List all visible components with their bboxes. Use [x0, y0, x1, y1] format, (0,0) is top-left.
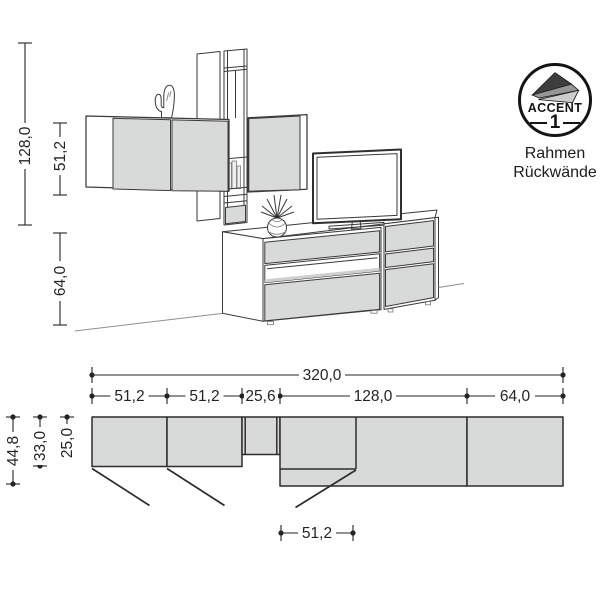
- dim-plan-depth-2: 33,0: [32, 427, 49, 465]
- plan-sideboard-right: [467, 417, 563, 486]
- cabinet-door: [249, 116, 300, 191]
- elevation-drawing: 128,0 51,2 64,0: [17, 43, 464, 331]
- badge-caption-line1: Rahmen: [499, 144, 600, 163]
- plan-cabinet-1: [92, 417, 167, 467]
- accent-badge-circle: ACCENT 1: [518, 63, 592, 137]
- plan-drawing: 320,0 51,2 51,2 25,6 128,0 64,0: [5, 367, 566, 542]
- svg-text:25,0: 25,0: [59, 428, 76, 459]
- accent-number-row: 1: [530, 115, 581, 131]
- dim-plan-segment-3: 25,6: [245, 388, 275, 405]
- dim-plan-depth-3: 25,0: [59, 424, 76, 462]
- svg-text:128,0: 128,0: [17, 126, 34, 165]
- accent-logo-icon: [527, 68, 583, 105]
- dim-elevation-total-height: 128,0: [17, 123, 34, 169]
- accent-number: 1: [550, 115, 561, 131]
- badge-divider-line: [530, 122, 547, 124]
- dim-plan-segment-4: 128,0: [354, 388, 393, 405]
- dim-plan-segment-1: 51,2: [114, 388, 144, 405]
- badge-divider-line: [563, 122, 580, 124]
- elevation-dimensions: 128,0 51,2 64,0: [17, 43, 69, 325]
- svg-text:64,0: 64,0: [52, 266, 69, 297]
- dim-plan-total-width: 320,0: [303, 367, 342, 384]
- accent-badge: ACCENT 1 Rahmen Rückwände: [499, 63, 600, 182]
- plan-leader-line: [167, 469, 225, 506]
- svg-text:33,0: 33,0: [32, 431, 49, 462]
- dim-plan-depth-1: 44,8: [5, 432, 22, 470]
- dim-plan-detail-width: 51,2: [302, 525, 332, 542]
- plan-shelf-column: [242, 417, 280, 455]
- cabinet-door: [113, 118, 171, 190]
- plan-leader-line: [92, 469, 150, 506]
- plan-cabinet-2: [167, 417, 242, 467]
- plan-shapes: [92, 417, 563, 508]
- sideboard-drawer: [386, 221, 434, 252]
- badge-caption: Rahmen Rückwände: [499, 144, 600, 182]
- sideboard: [223, 210, 439, 325]
- decor-cactus: [155, 85, 174, 118]
- cabinet-door: [172, 120, 228, 191]
- svg-text:51,2: 51,2: [52, 141, 69, 171]
- dim-elevation-sideboard-height: 64,0: [52, 261, 69, 301]
- svg-text:44,8: 44,8: [5, 436, 22, 466]
- badge-caption-line2: Rückwände: [499, 163, 600, 182]
- dim-plan-segment-5: 64,0: [500, 388, 531, 405]
- dim-plan-segment-2: 51,2: [189, 388, 219, 405]
- furniture-diagram-page: 128,0 51,2 64,0: [0, 0, 600, 600]
- plan-sideboard-left: [280, 417, 467, 486]
- tv-screen: [317, 154, 397, 220]
- wall-cabinets: [86, 115, 307, 192]
- tv: [313, 150, 401, 230]
- dim-elevation-cabinet-height: 51,2: [52, 137, 69, 175]
